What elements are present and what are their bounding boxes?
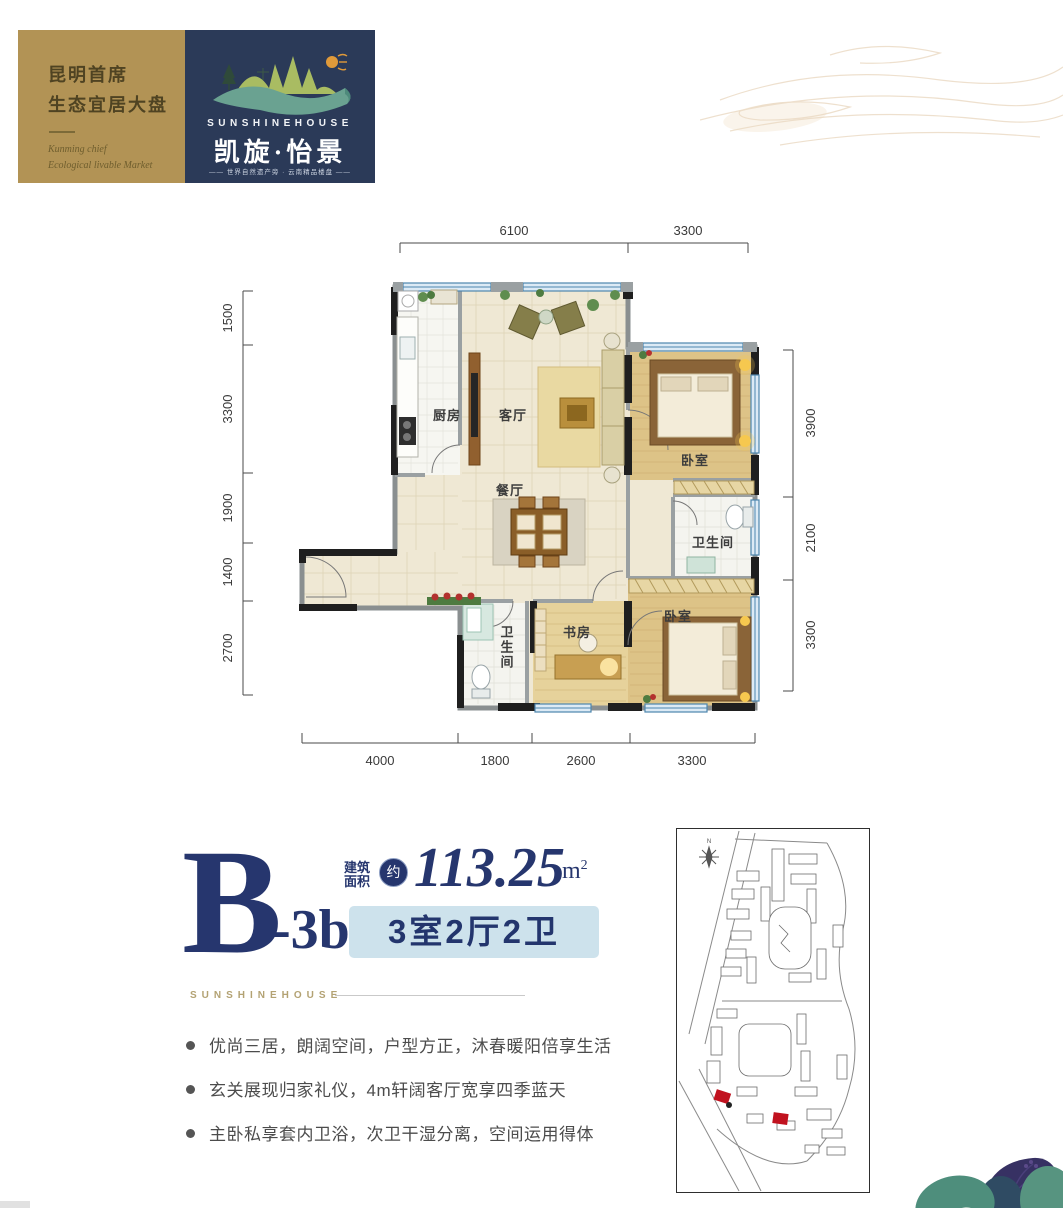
cloud-swirl-decoration <box>700 25 1063 165</box>
room-label-dining: 餐厅 <box>495 483 524 498</box>
area-unit-m: m <box>562 858 581 884</box>
bullet-icon <box>186 1085 195 1094</box>
brand-logo-card: SUNSHINEHOUSE 凯旋·怡景 —— 世界自然遗产旁 · 云南精品楼盘 … <box>185 30 375 183</box>
dim-right-2100: 2100 <box>803 524 818 553</box>
dim-left-2700: 2700 <box>220 634 235 663</box>
dim-top-3300: 3300 <box>674 223 703 238</box>
dim-right-3300: 3300 <box>803 621 818 650</box>
feature-text-2: 玄关展现归家礼仪，4m轩阔客厅宽享四季蓝天 <box>209 1081 566 1100</box>
site-buildings <box>707 849 847 1155</box>
dim-bottom-3300: 3300 <box>678 753 707 768</box>
dim-right-3900: 3900 <box>803 409 818 438</box>
dim-left-3300: 3300 <box>220 395 235 424</box>
gold-card-script: Kunming chief Ecological livable Market <box>48 142 152 174</box>
approx-badge: 约 <box>379 858 408 887</box>
area-prefix-label: 建筑 面积 <box>344 861 370 889</box>
bullet-icon <box>186 1041 195 1050</box>
poster-page: 昆明首席 生态宜居大盘 Kunming chief Ecological liv… <box>0 0 1063 1208</box>
gold-card-line2: 生态宜居大盘 <box>48 90 168 120</box>
dim-left-1400: 1400 <box>220 558 235 587</box>
leaf-mascot-illustration <box>913 1140 1063 1208</box>
dim-left-1500: 1500 <box>220 304 235 333</box>
feature-item-2: 玄关展现归家礼仪，4m轩阔客厅宽享四季蓝天 <box>186 1076 566 1101</box>
brand-tagline: —— 世界自然遗产旁 · 云南精品楼盘 —— <box>185 166 375 176</box>
room-label-living: 客厅 <box>499 408 527 423</box>
feature-item-1: 优尚三居，朗阔空间，户型方正，沐春暖阳倍享生活 <box>186 1032 612 1057</box>
gold-tagline-card: 昆明首席 生态宜居大盘 Kunming chief Ecological liv… <box>18 30 185 183</box>
site-plan-map: N <box>676 828 870 1193</box>
gold-card-script1: Kunming chief <box>48 142 152 158</box>
room-label-bathroom-guest: 卫生间 <box>499 625 514 670</box>
unit-code-letter: B <box>182 838 282 966</box>
dim-bottom-2600: 2600 <box>567 753 596 768</box>
floor-plan: 6100 3300 1500 3300 1900 1400 2700 3900 … <box>195 205 875 785</box>
unit-code-variant: -3b <box>272 898 350 962</box>
gold-card-headline: 昆明首席 生态宜居大盘 <box>48 60 168 120</box>
dim-left-1900: 1900 <box>220 494 235 523</box>
room-label-bathroom-master: 卫生间 <box>692 535 734 550</box>
room-label-bedroom-master: 卧室 <box>681 453 709 468</box>
compass-north-label: N <box>707 839 711 845</box>
area-unit: m2 <box>562 858 588 885</box>
gold-card-line1: 昆明首席 <box>48 60 168 90</box>
room-label-study: 书房 <box>563 625 591 640</box>
mountain-sun-logo-icon <box>205 38 355 118</box>
gold-card-divider <box>49 131 75 133</box>
area-prefix-line2: 面积 <box>344 875 370 889</box>
brand-name-en: SUNSHINEHOUSE <box>185 118 375 129</box>
brand-watermark-rule <box>335 995 525 996</box>
room-label-bedroom-second: 卧室 <box>664 609 692 624</box>
feature-text-3: 主卧私享套内卫浴，次卫干湿分离，空间运用得体 <box>209 1125 594 1144</box>
area-value: 113.25 <box>414 836 565 900</box>
feature-item-3: 主卧私享套内卫浴，次卫干湿分离，空间运用得体 <box>186 1120 594 1145</box>
brand-watermark: SUNSHINEHOUSE <box>190 990 342 1001</box>
dim-top-6100: 6100 <box>500 223 529 238</box>
gold-card-script2: Ecological livable Market <box>48 158 152 174</box>
brand-name-cn: 凯旋·怡景 <box>185 132 375 169</box>
area-unit-exponent: 2 <box>581 858 588 873</box>
room-label-kitchen: 厨房 <box>433 408 461 423</box>
area-prefix-line1: 建筑 <box>344 861 370 875</box>
layout-tag: 3室2厅2卫 <box>349 906 599 958</box>
dim-bottom-1800: 1800 <box>481 753 510 768</box>
compass-icon <box>699 847 719 867</box>
feature-text-1: 优尚三居，朗阔空间，户型方正，沐春暖阳倍享生活 <box>209 1037 612 1056</box>
dim-bottom-4000: 4000 <box>366 753 395 768</box>
bullet-icon <box>186 1129 195 1138</box>
bottom-left-artifact <box>0 1201 30 1208</box>
